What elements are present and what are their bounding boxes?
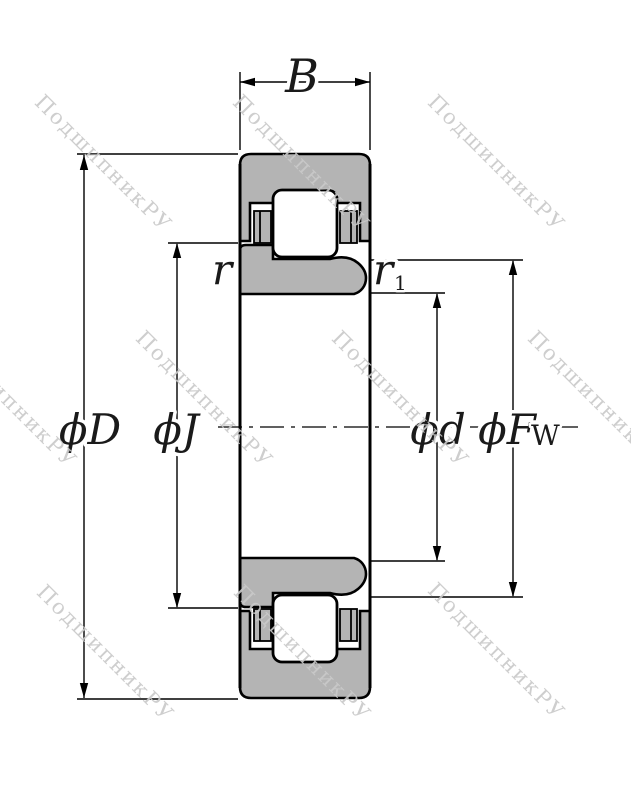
b-arrow-left [240,78,255,86]
fw-arrow-down [509,582,517,597]
label-rib-diameter: ϕJ [153,405,201,454]
cage-top-right [340,211,357,243]
bore-arrow-up [433,293,441,308]
cage-bottom-right [340,609,357,641]
label-width-B: B [284,49,319,103]
dimension-outer-diameter-D: ϕD [59,154,238,699]
j-arrow-down [173,593,181,608]
d-outer-arrow-up [80,155,88,170]
bearing-diagram-page: B ϕD ϕJ ϕd [0,0,631,792]
roller-bottom [273,595,337,662]
bore-arrow-down [433,546,441,561]
roller-top [273,190,337,257]
fw-arrow-up [509,260,517,275]
cage-top-left [254,211,271,243]
label-chamfer-r: r [212,245,235,294]
j-arrow-up [173,243,181,258]
b-arrow-right [355,78,370,86]
d-outer-arrow-down [80,683,88,698]
dimension-bore-diameter-d: ϕd [371,293,466,561]
label-bore-diameter: ϕd [410,405,466,454]
label-raceway-diameter: ϕF [478,405,538,454]
bearing-cross-section-diagram: B ϕD ϕJ ϕd [0,0,631,792]
cage-bottom-left [254,609,271,641]
dimension-rib-diameter-J: ϕJ [153,243,238,608]
label-outer-diameter: ϕD [59,405,121,454]
label-chamfer-r1: r [373,245,396,294]
label-raceway-diameter-subscript: W [531,419,560,452]
label-chamfer-r1-subscript: 1 [394,271,407,295]
dimension-width-B: B [240,49,370,150]
